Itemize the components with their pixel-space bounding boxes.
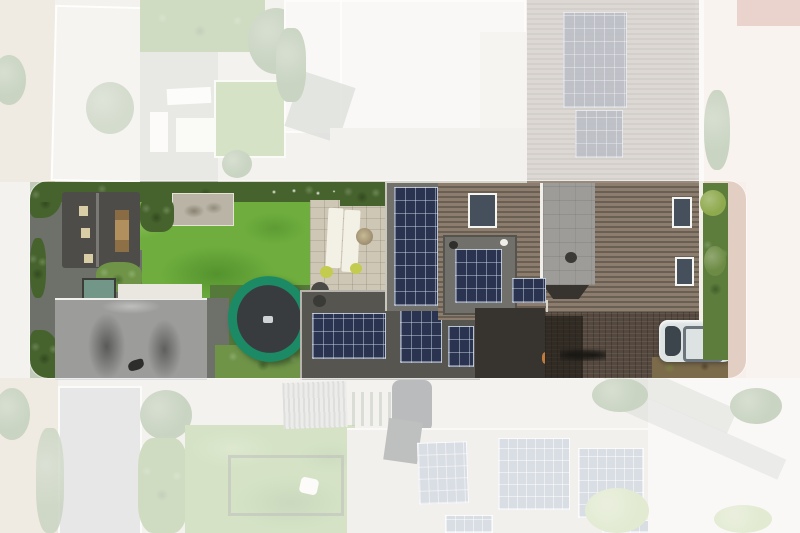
street-tile-strip [737, 0, 800, 26]
hedge-left-mid [30, 238, 46, 298]
carport-shadow [475, 308, 545, 378]
shed-skylight-2 [81, 228, 90, 238]
shed-doors [115, 210, 129, 252]
shrub-right-2 [704, 246, 726, 276]
side-path-right [728, 182, 746, 378]
patio-plant-1 [320, 266, 333, 278]
neighbor-lawn-top [214, 80, 286, 158]
solar-array-left [312, 313, 386, 359]
hedge-bottom-left [138, 438, 188, 533]
patio-table [356, 228, 373, 245]
trampoline-centre-mark [263, 316, 273, 323]
garden-chair-bottom [299, 476, 320, 495]
garage-apron [118, 284, 202, 299]
hedge-behind-shed [140, 196, 174, 232]
dormer-dot-light [500, 239, 508, 246]
decking-bottom [282, 381, 348, 429]
neighbor-solar-4 [445, 515, 493, 533]
shrub-right-1 [700, 190, 726, 216]
bicycles-blob [560, 348, 606, 362]
tree-right-upper [704, 90, 730, 170]
entry-dark-zone [545, 316, 583, 378]
shed-skylight-1 [79, 206, 88, 216]
neighbor-solar-2 [498, 438, 570, 510]
garden-seating-set [152, 242, 190, 270]
tree-top-mid-2 [222, 150, 252, 178]
garden-bench-3 [176, 118, 214, 152]
roof-edge-line-upper [699, 0, 704, 185]
bush-light-bottom-2 [714, 505, 772, 533]
hedge-top-strip [140, 0, 265, 52]
slate-dormer [540, 183, 595, 285]
roof-window-1 [468, 193, 497, 228]
dark-trees-bottom-left [36, 428, 64, 533]
car-rear-window [665, 326, 681, 356]
solar-array-tall [394, 187, 438, 306]
roof-window-2 [672, 197, 692, 228]
pergola [172, 193, 234, 226]
garden-bench-2 [150, 112, 168, 152]
tree-bottom-right-2 [730, 388, 782, 424]
upper-roof-solar-1 [563, 12, 627, 108]
bush-light-bottom-1 [585, 488, 649, 533]
garden-bench-1 [167, 87, 212, 105]
neighbor-roof-bottom-left [58, 386, 142, 533]
patio-plant-2 [350, 263, 362, 274]
solar-array-mid [400, 309, 442, 363]
tree-bottom-right-1 [592, 378, 648, 412]
shed-ridge [96, 193, 99, 267]
pergola-frame-bottom [228, 455, 344, 516]
solar-panel-edge [512, 278, 546, 303]
greenery-top-centre [276, 28, 306, 102]
solar-array-small [448, 326, 474, 367]
paving-above-plot [330, 128, 530, 183]
solar-array-dormer [455, 249, 502, 303]
hedge-flowers [262, 186, 342, 198]
aerial-photo-scene [0, 0, 800, 533]
hedge-patio-top [340, 184, 386, 206]
pale-roof-secondary [480, 32, 526, 132]
dormer-dot-dark [449, 241, 458, 249]
tree-on-roof-shadow [86, 82, 134, 134]
trellis-bottom [352, 392, 392, 426]
roof-vent-round [313, 295, 326, 307]
roof-window-3 [675, 257, 694, 286]
shed-skylight-3 [84, 254, 93, 263]
patio-lounger-1 [325, 208, 343, 269]
slate-dormer-vent [565, 252, 577, 263]
upper-roof-solar-2 [575, 110, 623, 158]
neighbor-solar-1 [417, 441, 469, 505]
